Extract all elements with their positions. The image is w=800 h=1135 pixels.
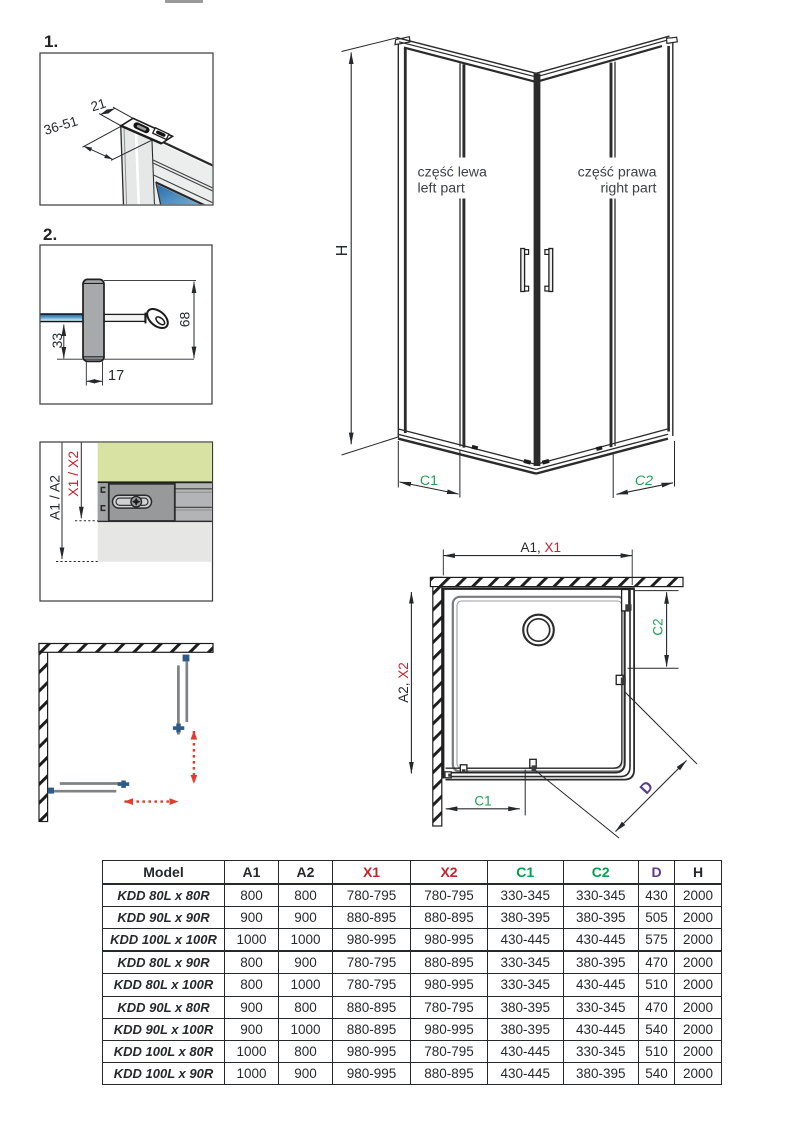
svg-text:36-51: 36-51	[42, 113, 79, 137]
svg-text:A1, X1: A1, X1	[521, 540, 562, 555]
svg-text:C2: C2	[635, 473, 653, 489]
svg-text:A2, X2: A2, X2	[396, 662, 411, 703]
svg-text:33: 33	[49, 333, 65, 349]
svg-text:right part: right part	[601, 181, 657, 197]
svg-text:68: 68	[177, 312, 193, 328]
svg-text:C2: C2	[651, 618, 666, 635]
svg-text:2.: 2.	[43, 225, 57, 244]
svg-text:1.: 1.	[44, 32, 58, 51]
svg-text:H: H	[334, 245, 351, 257]
svg-text:część prawa: część prawa	[578, 165, 657, 181]
svg-text:17: 17	[108, 368, 124, 384]
svg-text:A1 / A2: A1 / A2	[46, 475, 62, 520]
svg-text:część lewa: część lewa	[418, 165, 487, 181]
svg-text:C1: C1	[420, 473, 438, 489]
svg-text:D: D	[637, 778, 657, 798]
svg-text:X1 / X2: X1 / X2	[65, 451, 81, 497]
svg-text:21: 21	[89, 96, 108, 115]
svg-text:C1: C1	[474, 794, 491, 809]
svg-text:left part: left part	[418, 181, 465, 197]
